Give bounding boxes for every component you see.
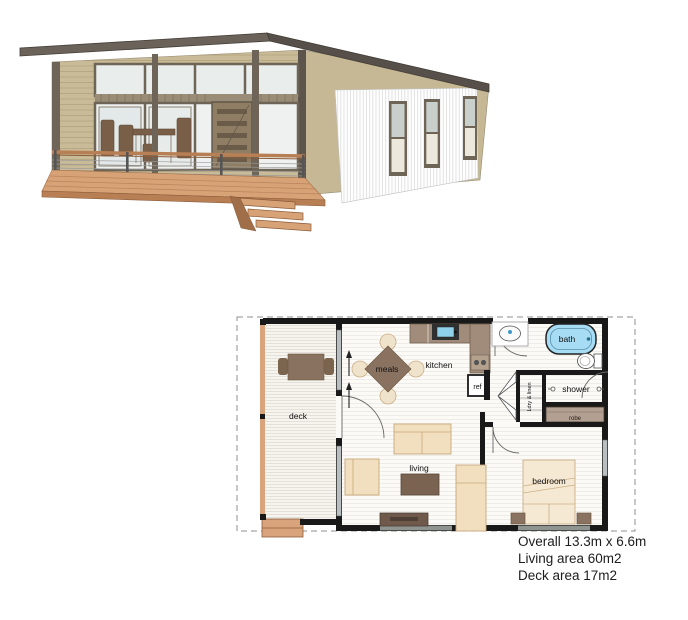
armchair [345, 459, 379, 495]
porch-post-left [152, 54, 158, 192]
spec-overall: Overall 13.3m x 6.6m [518, 533, 646, 550]
kitchen-sink [432, 324, 459, 340]
deck-edge-strip [260, 321, 265, 519]
toilet [578, 354, 603, 369]
kitchen-label: kitchen [426, 360, 453, 370]
shower-label: shower [562, 384, 590, 394]
bedside-table-right [577, 513, 591, 524]
living-label: living [409, 463, 429, 473]
deck-label: deck [289, 411, 308, 421]
bedroom-label: bedroom [532, 476, 566, 486]
bed [523, 460, 575, 524]
bathtub: bath [546, 324, 596, 354]
spec-deck-area: Deck area 17m2 [518, 567, 646, 584]
porch-post-right [252, 50, 259, 192]
vanity-basin [492, 322, 528, 346]
side-window-2 [424, 99, 440, 168]
meals-label: meals [376, 364, 399, 374]
house-3d-render [15, 28, 500, 263]
coffee-table [401, 474, 439, 495]
deck-3d [42, 170, 325, 231]
bedroom-window [518, 526, 590, 531]
plan-specs: Overall 13.3m x 6.6m Living area 60m2 De… [518, 533, 646, 584]
deck-steps-plan [262, 519, 303, 537]
tv-unit [380, 513, 428, 526]
robe-label: robe [569, 416, 582, 422]
cooktop [471, 355, 489, 370]
roof-front [20, 33, 270, 56]
ref-label: ref [473, 384, 481, 391]
bath-label: bath [559, 334, 576, 344]
side-window-1 [389, 101, 407, 176]
chaise [456, 465, 486, 531]
floor-plan: ref bath [232, 308, 642, 543]
bath-shower-wall [516, 370, 608, 375]
robe: robe [544, 402, 608, 422]
spec-living-area: Living area 60m2 [518, 550, 646, 567]
page: ref bath [0, 0, 688, 620]
side-window-3 [463, 96, 477, 160]
sofa [394, 424, 451, 454]
bedside-table-left [511, 513, 525, 524]
front-door [212, 102, 252, 169]
laundry-label: Ldry & linen [527, 382, 533, 411]
bedroom-side-window [603, 440, 608, 476]
hall-wall-stub [484, 370, 490, 400]
